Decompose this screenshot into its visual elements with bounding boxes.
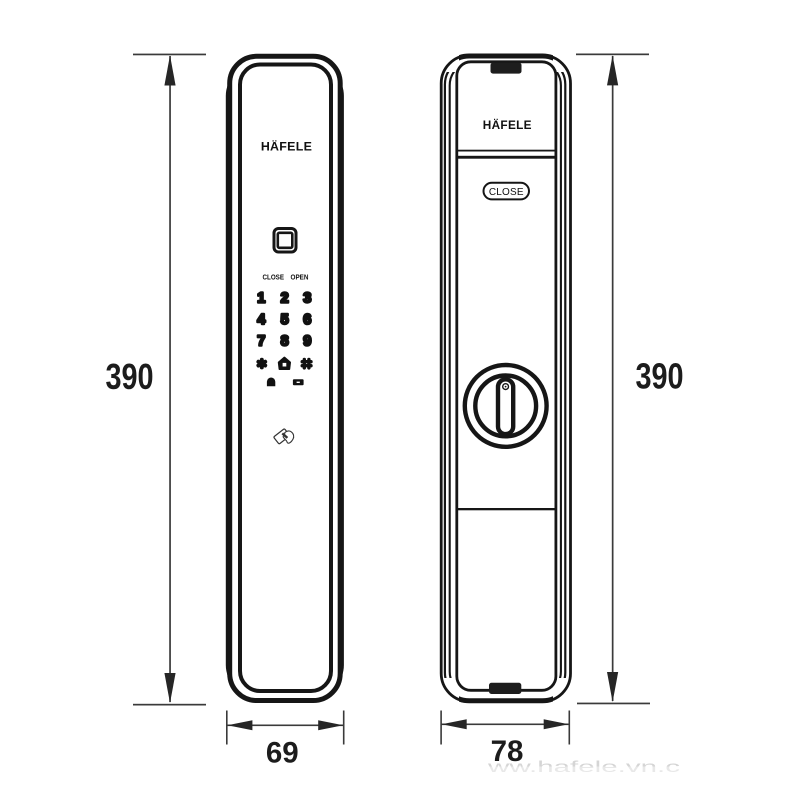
svg-text:390: 390 (635, 355, 683, 396)
svg-text:8: 8 (281, 333, 289, 349)
svg-text:CLOSE: CLOSE (489, 187, 524, 198)
svg-text:HÄFELE: HÄFELE (483, 118, 532, 132)
svg-text:CLOSE: CLOSE (263, 273, 285, 282)
svg-text:4: 4 (257, 312, 265, 328)
svg-text:HÄFELE: HÄFELE (261, 138, 312, 153)
svg-text:5: 5 (281, 312, 289, 328)
svg-text:390: 390 (105, 356, 153, 397)
svg-text:2: 2 (281, 290, 289, 306)
svg-text:7: 7 (257, 333, 265, 349)
svg-text:3: 3 (303, 290, 311, 306)
svg-text:69: 69 (266, 737, 299, 770)
svg-text:9: 9 (303, 333, 311, 349)
svg-text:1: 1 (257, 290, 265, 306)
svg-text:6: 6 (303, 312, 311, 328)
svg-text:OPEN: OPEN (291, 273, 309, 282)
